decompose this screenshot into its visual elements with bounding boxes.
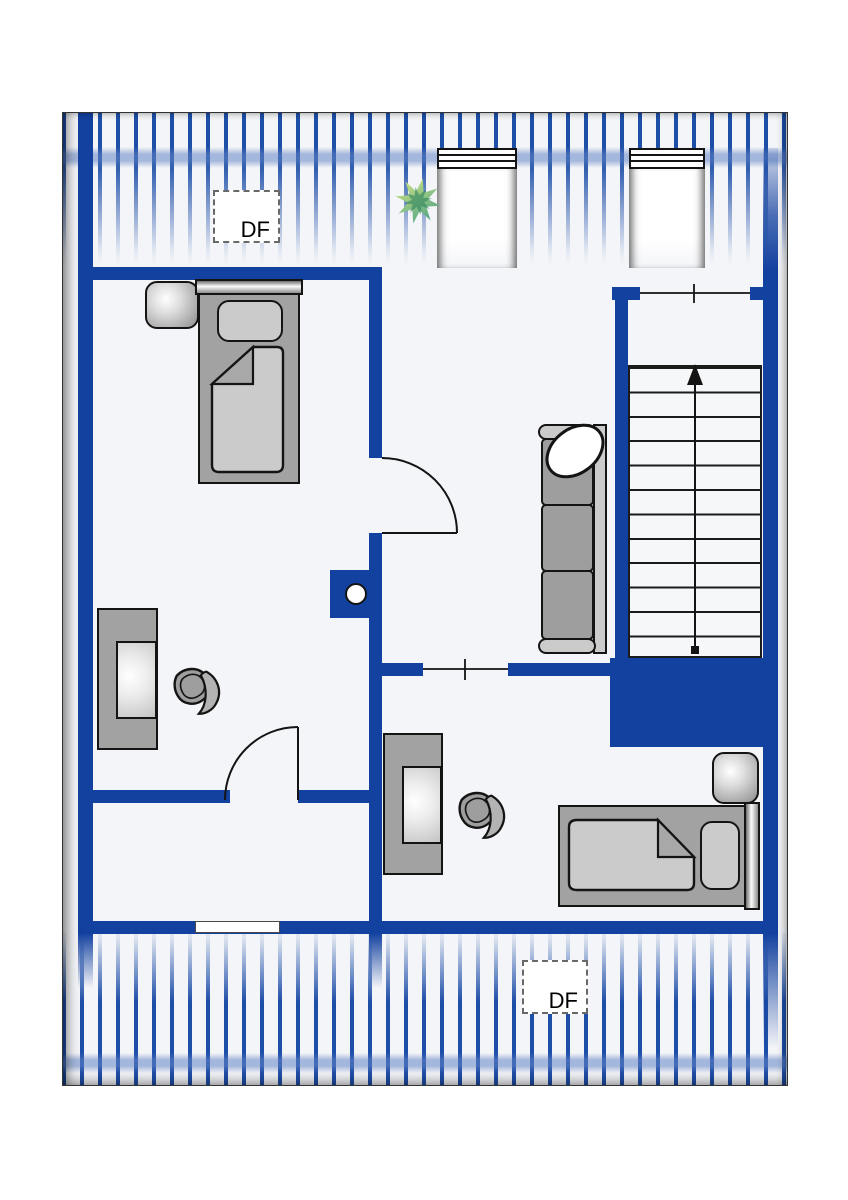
roof-window-box-bottom: DF xyxy=(522,960,588,1014)
ridge-band-bottom xyxy=(62,1053,788,1073)
bed-2-pillow xyxy=(700,821,740,890)
roof-window-label-top: DF xyxy=(241,219,270,241)
wall-middle-stub xyxy=(369,933,382,988)
bed-2-headboard xyxy=(744,802,760,910)
wall-left-divider-b xyxy=(298,790,369,803)
sofa-armrest-bottom xyxy=(538,638,596,654)
sofa-armrest-top xyxy=(538,424,596,440)
window-light-well-2 xyxy=(629,167,705,268)
wall-right xyxy=(763,270,778,933)
window-top-2 xyxy=(629,148,705,169)
floor-plan-canvas: DF DF xyxy=(0,0,848,1200)
wall-left-divider-a xyxy=(93,790,230,803)
sofa-cushion-1 xyxy=(541,438,594,506)
wall-right-upper xyxy=(763,148,778,270)
wall-hall-bottom-a xyxy=(369,663,423,676)
sofa-backrest xyxy=(593,424,607,654)
nightstand-1 xyxy=(145,281,199,329)
bed-1-headboard xyxy=(195,279,303,295)
wall-left-stub xyxy=(78,933,93,988)
wall-middle-upper xyxy=(369,267,382,458)
nightstand-2 xyxy=(712,752,759,804)
window-top-1 xyxy=(437,148,517,169)
wall-block-under-stairs xyxy=(610,658,778,747)
chimney-flue-icon xyxy=(345,583,367,605)
desk-1-top xyxy=(116,641,157,719)
roof-window-label-bottom: DF xyxy=(549,990,578,1012)
staircase xyxy=(628,365,762,658)
roof-window-box-top: DF xyxy=(213,190,280,243)
wall-right-stub xyxy=(763,933,778,1048)
wall-stair-left xyxy=(615,287,628,663)
window-light-well-1 xyxy=(437,167,517,268)
bed-1-pillow xyxy=(217,300,283,342)
wall-hall-bottom-b xyxy=(508,663,615,676)
window-bottom-wall xyxy=(195,921,280,933)
wall-stair-top-b xyxy=(750,287,763,300)
wall-left xyxy=(78,112,93,934)
sofa-cushion-3 xyxy=(541,570,594,640)
sofa-cushion-2 xyxy=(541,504,594,572)
desk-2-top xyxy=(402,766,442,844)
wall-bottom xyxy=(78,921,778,934)
